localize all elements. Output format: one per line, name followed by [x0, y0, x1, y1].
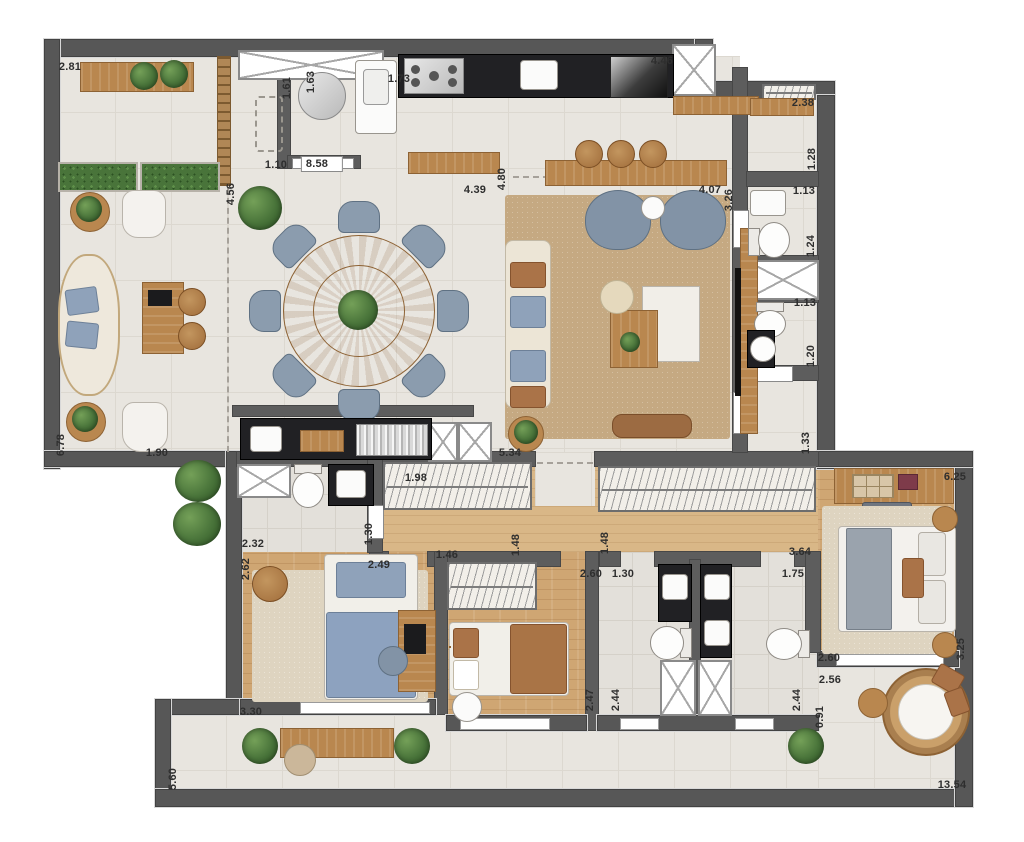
dimension-label: 8.58 — [301, 156, 343, 172]
dimension-label: 5.60 — [167, 768, 179, 790]
dimension-label: 1.98 — [405, 472, 427, 484]
floor-plan: 2.811.611.631.734.462.381.281.131.241.13… — [0, 0, 1024, 842]
dimension-label: 2.60 — [818, 652, 840, 664]
dimension-label: 6.25 — [944, 471, 966, 483]
dimension-label: 1.90 — [146, 447, 168, 459]
dimension-label: 1.20 — [805, 345, 817, 367]
dimension-label: 2.44 — [791, 689, 803, 711]
dimension-label: 4.39 — [464, 184, 486, 196]
dimension-label: 6.78 — [55, 434, 67, 456]
dimension-label: 0.91 — [814, 706, 826, 728]
dimension-label: 2.38 — [792, 97, 814, 109]
dimension-label: 1.48 — [599, 532, 611, 554]
dimension-label: 2.62 — [240, 558, 252, 580]
dimension-label: 3.25 — [955, 638, 967, 660]
dimension-label: 1.10 — [265, 159, 287, 171]
dimension-label: 2.44 — [610, 689, 622, 711]
dimension-label: 1.30 — [363, 523, 375, 545]
dimension-label: 2.47 — [584, 689, 596, 711]
dimension-label: 4.80 — [496, 168, 508, 190]
dimension-label: 13.54 — [938, 779, 967, 791]
dimension-label: 1.73 — [388, 73, 410, 85]
dimension-label: 4.07 — [699, 184, 721, 196]
dimension-label: 4.46 — [651, 55, 673, 67]
dimension-label: 2.49 — [368, 559, 390, 571]
dimension-label: 1.28 — [806, 148, 818, 170]
dimension-label: 1.75 — [782, 568, 804, 580]
dimension-label: 3.64 — [789, 546, 811, 558]
dimension-label: 4.56 — [225, 183, 237, 205]
dimension-label: 1.33 — [800, 432, 812, 454]
dimension-label: 2.81 — [59, 61, 81, 73]
dimension-label: 1.63 — [305, 71, 317, 93]
dimension-label: 1.30 — [612, 568, 634, 580]
dimension-label: 1.46 — [436, 549, 458, 561]
dimension-label: 1.48 — [510, 534, 522, 556]
dimension-label: 1.24 — [805, 235, 817, 257]
dimension-label: 2.32 — [242, 538, 264, 550]
dimension-label: 5.34 — [499, 447, 521, 459]
dimension-label: 2.60 — [580, 568, 602, 580]
dimension-label: 1.61 — [281, 77, 293, 99]
dimension-label: 2.56 — [819, 674, 841, 686]
dimension-layer: 2.811.611.631.734.462.381.281.131.241.13… — [0, 0, 1024, 842]
dimension-label: 1.13 — [793, 185, 815, 197]
dimension-label: 1.13 — [794, 297, 816, 309]
dimension-label: 3.30 — [240, 706, 262, 718]
dimension-label: 3.26 — [723, 189, 735, 211]
